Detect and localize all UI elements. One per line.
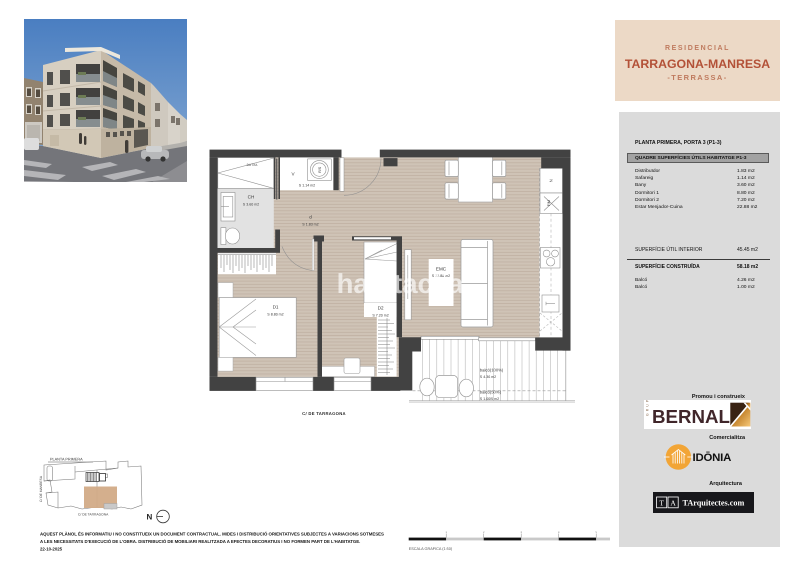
svg-text:PLANTA PRIMERA: PLANTA PRIMERA bbox=[50, 458, 83, 462]
svg-text:S 1.00/5 m2: S 1.00/5 m2 bbox=[480, 397, 499, 401]
svg-text:AQUEST PLÀNOL ÉS INFORMATIU I: AQUEST PLÀNOL ÉS INFORMATIU I NO CONSTIT… bbox=[40, 532, 384, 537]
svg-text:A LES NECESSITATS D'EXECUCIÓ D: A LES NECESSITATS D'EXECUCIÓ DE L'OBRA. … bbox=[40, 539, 360, 544]
svg-text:22-10-2025: 22-10-2025 bbox=[40, 547, 63, 552]
svg-text:2: 2 bbox=[483, 531, 485, 534]
svg-text:C/ DE MANRESA: C/ DE MANRESA bbox=[39, 475, 43, 502]
svg-text:S 1.14 m2: S 1.14 m2 bbox=[299, 184, 315, 188]
svg-text:F/M: F/M bbox=[547, 200, 551, 206]
svg-text:C/ DE TARRAGONA: C/ DE TARRAGONA bbox=[302, 411, 346, 416]
svg-text:N: N bbox=[549, 179, 554, 182]
svg-text:R/S: R/S bbox=[318, 166, 322, 173]
svg-text:D2: D2 bbox=[378, 306, 384, 311]
svg-text:DUTXA: DUTXA bbox=[247, 163, 259, 167]
svg-text:C/ DE TARRAGONA: C/ DE TARRAGONA bbox=[78, 513, 109, 517]
svg-text:3: 3 bbox=[520, 531, 522, 534]
svg-text:S 8.80 m2: S 8.80 m2 bbox=[267, 313, 283, 317]
svg-text:S 3.60 m2: S 3.60 m2 bbox=[243, 203, 259, 207]
svg-text:1: 1 bbox=[445, 531, 447, 534]
svg-text:ESCALA GRAFICA (1:50): ESCALA GRAFICA (1:50) bbox=[409, 547, 453, 551]
svg-text:D1: D1 bbox=[273, 305, 279, 310]
svg-text:balcó(100%): balcó(100%) bbox=[480, 368, 504, 373]
svg-text:S 1.83 m2: S 1.83 m2 bbox=[302, 223, 318, 227]
svg-text:habitaclia: habitaclia bbox=[337, 268, 465, 299]
svg-text:N: N bbox=[147, 513, 153, 522]
svg-text:4: 4 bbox=[558, 531, 560, 534]
svg-text:S 7.20 m2: S 7.20 m2 bbox=[372, 314, 388, 318]
svg-text:S 4.36 m2: S 4.36 m2 bbox=[480, 375, 496, 379]
svg-text:5: 5 bbox=[595, 531, 597, 534]
svg-text:balcó(50%): balcó(50%) bbox=[480, 390, 502, 395]
svg-text:d: d bbox=[309, 215, 312, 220]
svg-text:CH: CH bbox=[248, 195, 255, 200]
